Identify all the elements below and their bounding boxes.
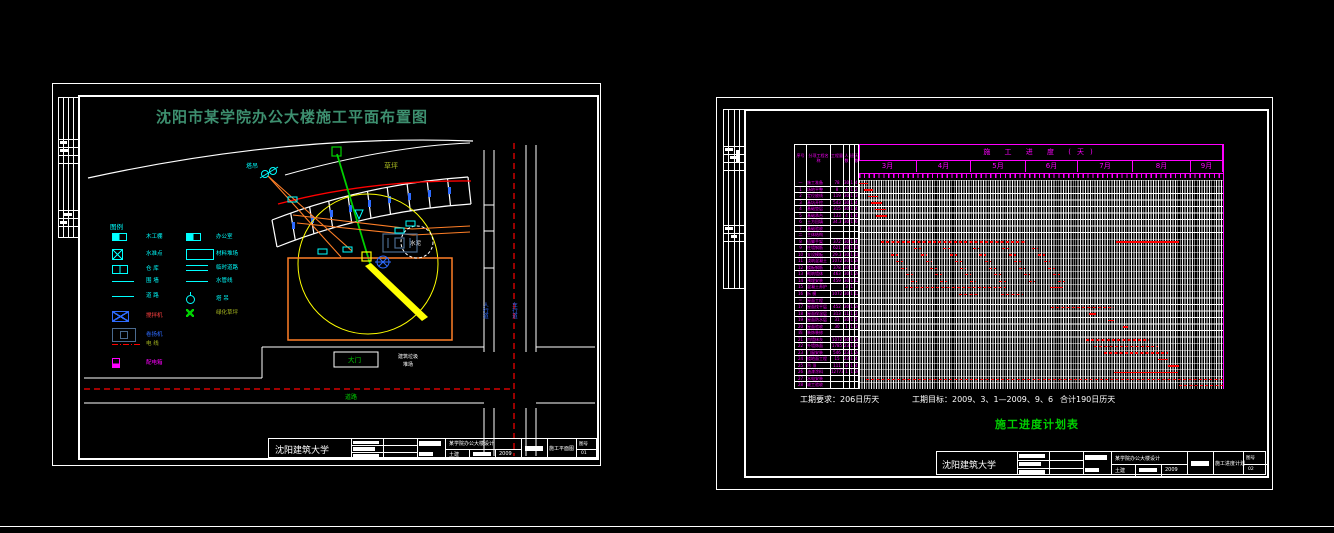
- gantt-bar: [1094, 346, 1158, 347]
- col-header-no: 序号: [795, 145, 807, 181]
- task-row: 21内墙抹灰107230124: [795, 337, 859, 344]
- drawing-name: 施工进度计划: [1215, 460, 1245, 467]
- discipline: 土建: [1115, 467, 1125, 474]
- legend-label: 围 墙: [146, 278, 159, 285]
- temp-road-symbol: [186, 265, 208, 271]
- hoist-symbol: [112, 328, 136, 342]
- year: 2009: [1165, 467, 1178, 473]
- legend-item: 配电箱: [112, 358, 186, 368]
- task-row: 6土方回填34.33016: [795, 219, 859, 226]
- gantt-bar: [881, 241, 1027, 242]
- school-name: 沈阳建筑大学: [942, 458, 996, 471]
- lawn-symbol: [186, 309, 194, 317]
- task-row: 三屋面工程: [795, 298, 859, 305]
- col-header-qty: 工程量: [831, 145, 844, 181]
- gantt-bar: [866, 379, 1223, 380]
- crane-track-line: [337, 154, 371, 267]
- gantt-bar: [973, 248, 980, 249]
- legend-label: 搅拌机: [146, 313, 163, 320]
- task-row: 11浇筑混凝土107230124: [795, 258, 859, 265]
- gantt-bar: [1123, 326, 1128, 327]
- legend-item: 木工棚: [112, 233, 186, 241]
- lawn-label: 草坪: [384, 161, 398, 170]
- col-header-name: 分项工程名称: [807, 145, 831, 181]
- stockyard-symbol: [186, 249, 214, 260]
- legend-label: 电 线: [146, 341, 159, 348]
- month-cell: 6月: [1026, 160, 1078, 172]
- task-row: 23门窗安装54623124: [795, 350, 859, 357]
- legend-item: 水管线: [186, 281, 256, 282]
- legend-label: 水准点: [146, 251, 163, 258]
- cad-canvas: { "colors": { "background": "#000000", "…: [0, 0, 1334, 533]
- sheet-number: 02: [1248, 467, 1254, 472]
- gantt-bar: [999, 281, 1006, 282]
- legend-item: 绿化草坪: [186, 309, 256, 317]
- gantt-bar: [1050, 287, 1063, 288]
- task-row: 16拆 模107230112: [795, 291, 859, 298]
- gantt-bar: [864, 189, 873, 190]
- month-cell: 4月: [917, 160, 971, 172]
- gantt-bar: [960, 268, 967, 269]
- month-cell: 8月: [1133, 160, 1191, 172]
- gantt-bar: [1038, 254, 1045, 255]
- gantt-bar: [1108, 320, 1114, 321]
- legend-label: 水管线: [216, 278, 233, 285]
- gantt-bar: [989, 268, 996, 269]
- vertical-road: [484, 145, 536, 456]
- task-row: 二主体结构: [795, 232, 859, 239]
- task-row: 19屋面防水层313015: [795, 317, 859, 324]
- sheet-label: 图号: [579, 441, 588, 447]
- project-name: 某学院办公大楼设计: [449, 440, 494, 447]
- month-cell: 5月: [971, 160, 1026, 172]
- gantt-bar: [970, 281, 977, 282]
- gantt-bar: [1086, 339, 1149, 340]
- legend-label: 塔 吊: [216, 296, 229, 303]
- red-alignment-line: [278, 181, 471, 204]
- task-row: 15混凝土养护31: [795, 284, 859, 291]
- gantt-bar: [911, 281, 918, 282]
- gantt-bar: [1168, 365, 1179, 366]
- gantt-bar: [876, 215, 887, 216]
- discipline: 土建: [449, 451, 459, 458]
- horizontal-road: [84, 347, 595, 403]
- task-row: 22外墙饰面178523124: [795, 343, 859, 350]
- gantt-bar: [940, 281, 947, 282]
- warehouse-symbol: [112, 265, 128, 274]
- task-rows: 一施工准备7830141场地平整84122定位放线11930133基坑开挖543…: [795, 180, 859, 389]
- task-row: 9柱墙钢筋62130110: [795, 245, 859, 252]
- road-curve-lower: [285, 143, 470, 175]
- right-title-block: 沈阳建筑大学 某学院办公大楼设计 土建 2009 施工进度计划 图号 02: [936, 451, 1266, 475]
- legend-label: 材料堆场: [216, 251, 238, 258]
- gantt-bar: [979, 254, 986, 255]
- legend-label: 临时道路: [216, 265, 238, 272]
- gantt-bar: [926, 261, 933, 262]
- site-plan-drawing: 水泥 塔吊 草坪: [78, 95, 595, 456]
- month-header-row: 3月4月5月6月7月8月9月: [859, 160, 1223, 174]
- gantt-bar-layer: [859, 180, 1223, 389]
- gantt-bar: [1089, 313, 1096, 314]
- mixer-symbol: [112, 311, 129, 322]
- gantt-bar: [1116, 241, 1179, 242]
- task-row: 12楼板钢筋37830110: [795, 265, 859, 272]
- gantt-bar: [985, 261, 992, 262]
- task-row: 18屋面保温层3131112: [795, 311, 859, 318]
- target-note: 工期目标：2009、3、1—2009、9、6: [912, 394, 1053, 405]
- drawing-name: 施工平面图: [549, 445, 574, 452]
- gantt-bar: [1179, 385, 1223, 386]
- distribution-box-symbol: [112, 358, 120, 368]
- gantt-bar: [868, 196, 878, 197]
- sheet-label: 图号: [1246, 455, 1255, 461]
- gantt-bar: [1048, 268, 1055, 269]
- sheet-number: 01: [581, 451, 587, 456]
- task-row: 5基础承台133414: [795, 213, 859, 220]
- gantt-bar: [1158, 359, 1168, 360]
- gantt-bar: [1002, 248, 1009, 249]
- mixer-area-label: 水泥: [410, 239, 422, 247]
- gantt-bar: [901, 268, 908, 269]
- legend-label: 仓 库: [146, 266, 159, 273]
- month-cell: 7月: [1078, 160, 1133, 172]
- legend-item: 电 线: [112, 344, 186, 345]
- gantt-bar: [859, 183, 868, 184]
- site-note-line2: 堆场: [403, 361, 413, 368]
- sidewalk-label: 人行道: [482, 302, 489, 320]
- fence-symbol: [112, 281, 134, 282]
- gantt-bar: [943, 248, 950, 249]
- task-row: 20屋面验收30113: [795, 324, 859, 331]
- legend-item: 卷扬机: [112, 328, 186, 342]
- gantt-bar: [905, 287, 1007, 288]
- office-symbol: [186, 233, 201, 241]
- col-header-days: 天数: [855, 145, 860, 181]
- power-lines: [268, 176, 470, 257]
- school-name: 沈阳建筑大学: [275, 443, 329, 456]
- gantt-bar: [930, 268, 937, 269]
- right-sheet-title: 施工进度计划表: [995, 416, 1079, 432]
- task-row: 24楼地面工程152314: [795, 356, 859, 363]
- shed-symbol: [112, 233, 127, 241]
- task-row: 10支设模板29.330110: [795, 252, 859, 259]
- total-note: 合计190日历天: [1060, 394, 1115, 405]
- gantt-bar: [896, 261, 903, 262]
- day-tick-row: [859, 174, 1223, 178]
- task-row: 8搭脚手架3723014: [795, 239, 859, 246]
- duration-note: 工期要求：206日历天: [800, 394, 879, 405]
- legend-item: 围 墙: [112, 281, 186, 282]
- gantt-bar: [1051, 307, 1114, 308]
- task-row: 7基础验收: [795, 226, 859, 233]
- left-title-block: 沈阳建筑大学 某学院办公大楼设计 土建 2009 施工平面图 图号 01: [268, 438, 597, 458]
- gantt-bar: [871, 202, 882, 203]
- task-row: 4基础垫层3153014: [795, 206, 859, 213]
- legend-item: 材料堆场: [186, 249, 256, 260]
- task-row: 17屋面找平层45230124: [795, 304, 859, 311]
- legend-label: 绿化草坪: [216, 310, 238, 317]
- gantt-bar: [955, 261, 962, 262]
- schedule-header-band: 施 工 进 度 (天): [859, 144, 1223, 161]
- gantt-bar: [959, 294, 979, 295]
- roadway-label: 车行道: [511, 301, 518, 320]
- month-cell: 9月: [1191, 160, 1223, 172]
- benchmark-symbol: [112, 249, 123, 260]
- gantt-bar: [914, 248, 921, 249]
- legend-label: 木工棚: [146, 234, 163, 241]
- gantt-bar: [1058, 281, 1065, 282]
- legend-label: 办公室: [216, 234, 233, 241]
- layout-bottom-edge: [0, 526, 1334, 527]
- building-outline: [272, 177, 471, 247]
- road-symbol: [112, 296, 134, 297]
- legend-item: 搅拌机: [112, 311, 186, 322]
- gantt-bar: [965, 274, 972, 275]
- gantt-bar: [1029, 281, 1036, 282]
- gantt-bar: [1104, 352, 1168, 353]
- gantt-bar: [906, 274, 913, 275]
- task-row: 14预埋安装45930112: [795, 278, 859, 285]
- task-row: 3基坑开挖5433014: [795, 200, 859, 207]
- task-row: 26油漆涂料127731124: [795, 369, 859, 376]
- waterline-symbol: [186, 281, 208, 282]
- crane-boom: [365, 263, 428, 321]
- task-row: 25吊 顶111814: [795, 363, 859, 370]
- site-note-line1: 建筑垃圾: [398, 353, 418, 360]
- legend-item: 临时道路: [186, 265, 256, 271]
- gantt-bar: [1053, 274, 1060, 275]
- legend-item: 塔 吊: [186, 295, 256, 304]
- gantt-bar: [875, 209, 886, 210]
- gantt-bar: [994, 274, 1001, 275]
- gantt-bar: [1114, 372, 1178, 373]
- gantt-bar: [1009, 254, 1016, 255]
- task-row: 2定位放线1193013: [795, 193, 859, 200]
- gantt-bar: [1024, 274, 1031, 275]
- tower-crane-label: 塔吊: [246, 162, 258, 170]
- legend-label: 道 路: [146, 293, 159, 300]
- task-row: 28竣工验收: [795, 382, 859, 389]
- road-name-label: 道路: [345, 393, 357, 401]
- year: 2009: [499, 451, 512, 457]
- table-column-headers: 序号 分项工程名称 工程量 人数 班 天数: [795, 144, 859, 181]
- project-name: 某学院办公大楼设计: [1115, 455, 1160, 462]
- gantt-bar: [921, 254, 928, 255]
- task-row: 27水电安装: [795, 376, 859, 383]
- powerline-symbol: [112, 344, 140, 345]
- gantt-bar: [950, 254, 957, 255]
- gantt-bar: [891, 254, 898, 255]
- gantt-bar: [1032, 248, 1039, 249]
- task-row: 四装饰装修: [795, 330, 859, 337]
- legend-label: 配电箱: [146, 360, 163, 367]
- gantt-bar: [935, 274, 942, 275]
- task-row: 13砌筑墙体46330124: [795, 271, 859, 278]
- gantt-bar: [1014, 261, 1021, 262]
- gantt-bar: [1044, 261, 1051, 262]
- legend-label: 卷扬机: [146, 332, 163, 339]
- legend-item: 水准点: [112, 249, 186, 260]
- legend-item: 仓 库: [112, 265, 186, 274]
- schedule-table: 施 工 进 度 (天) 3月4月5月6月7月8月9月 序号 分项工程名称 工程量…: [794, 144, 1224, 389]
- gantt-bar: [1019, 268, 1026, 269]
- gate-label: 大门: [348, 355, 361, 364]
- month-cell: 3月: [859, 160, 917, 172]
- legend-item: 办公室: [186, 233, 256, 241]
- legend-title: 图例: [110, 221, 123, 231]
- gantt-bar: [1001, 294, 1023, 295]
- road-curve-upper: [88, 140, 473, 178]
- task-row: 1场地平整8412: [795, 187, 859, 194]
- legend-item: 道 路: [112, 296, 186, 297]
- tower-crane-symbol: [186, 295, 195, 304]
